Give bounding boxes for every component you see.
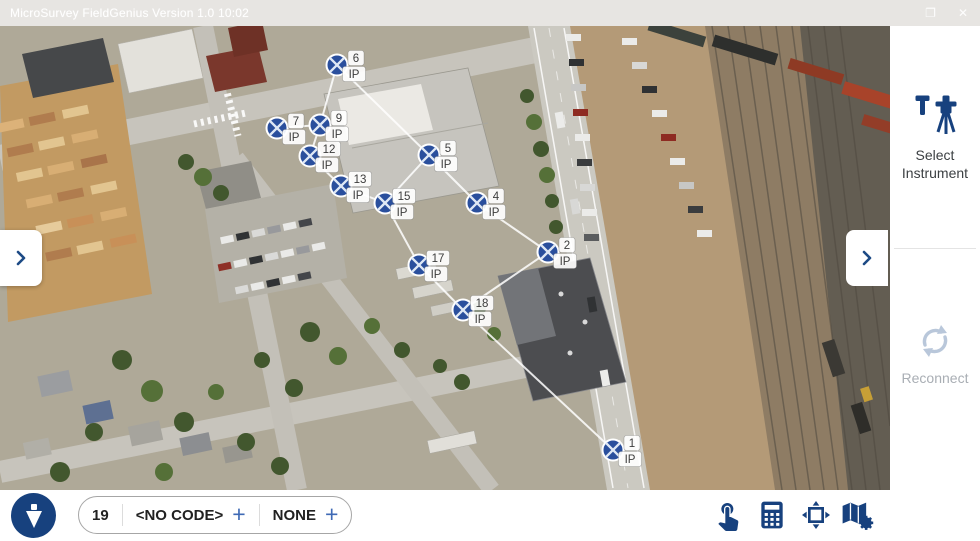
survey-point-13[interactable]: 13IP (331, 172, 372, 203)
point-label-text: IP (475, 314, 486, 326)
point-label-text: 7 (293, 116, 299, 128)
point-label-text: IP (397, 207, 408, 219)
point-label-text: IP (431, 269, 442, 281)
refresh-icon (915, 321, 955, 361)
point-label-text: IP (349, 69, 360, 81)
select-instrument-label: Select Instrument (890, 147, 980, 182)
survey-point-12[interactable]: 12IP (300, 142, 341, 173)
close-button[interactable]: ✕ (958, 6, 968, 20)
app-window: MicroSurvey FieldGenius Version 1.0 10:0… (0, 0, 980, 541)
survey-point-5[interactable]: 5IP (419, 141, 458, 172)
point-label-text: IP (322, 160, 333, 172)
point-label-text: 2 (564, 240, 570, 252)
maximize-button[interactable]: ❐ (925, 6, 936, 20)
survey-point-6[interactable]: 6IP (327, 51, 366, 82)
point-label-text: 13 (354, 174, 367, 186)
survey-point-17[interactable]: 17IP (409, 251, 450, 282)
survey-point-2[interactable]: 2IP (538, 238, 577, 269)
code-selector[interactable]: <NO CODE> + (123, 497, 259, 533)
next-point-number[interactable]: 19 (79, 497, 122, 533)
chevron-right-icon (13, 249, 29, 267)
description-selector[interactable]: NONE + (260, 497, 352, 533)
survey-points-overlay: 1IP2IP4IP5IP6IP7IP9IP12IP13IP15IP17IP18I… (0, 26, 890, 490)
window-title: MicroSurvey FieldGenius Version 1.0 10:0… (0, 6, 249, 20)
point-label-text: 1 (629, 438, 635, 450)
right-panel-expand-tab[interactable] (846, 230, 888, 286)
point-label-text: IP (353, 190, 364, 202)
reconnect-label: Reconnect (890, 370, 980, 386)
zoom-extents-icon (800, 499, 832, 531)
left-panel-expand-tab[interactable] (0, 230, 42, 286)
chevron-right-icon (859, 249, 875, 267)
plumb-bob-icon (23, 503, 45, 529)
point-label-text: IP (289, 132, 300, 144)
touch-mode-button[interactable] (712, 499, 744, 531)
survey-point-7[interactable]: 7IP (267, 114, 306, 145)
survey-point-15[interactable]: 15IP (375, 189, 416, 220)
survey-line (463, 310, 613, 450)
zoom-extents-button[interactable] (800, 499, 832, 531)
calculator-button[interactable] (756, 499, 788, 531)
map-view[interactable]: 1IP2IP4IP5IP6IP7IP9IP12IP13IP15IP17IP18I… (0, 26, 890, 490)
point-label-text: 4 (493, 191, 500, 203)
point-label-text: 6 (353, 53, 359, 65)
point-label-text: 18 (476, 298, 489, 310)
point-label-text: IP (489, 207, 500, 219)
survey-point-18[interactable]: 18IP (453, 296, 494, 327)
panel-divider (894, 248, 976, 249)
reconnect-button: Reconnect (890, 321, 980, 386)
calculator-icon (756, 499, 788, 531)
title-bar: MicroSurvey FieldGenius Version 1.0 10:0… (0, 0, 980, 26)
point-label-text: 15 (398, 191, 411, 203)
survey-point-4[interactable]: 4IP (467, 189, 506, 220)
point-label-text: 17 (432, 253, 445, 265)
add-code-button[interactable]: + (232, 501, 245, 528)
total-station-icon (912, 94, 958, 136)
point-label-text: 12 (323, 144, 336, 156)
point-label-text: 5 (445, 143, 451, 155)
point-label-text: IP (332, 129, 343, 141)
survey-point-1[interactable]: 1IP (603, 436, 642, 467)
point-label-text: IP (560, 256, 571, 268)
add-description-button[interactable]: + (325, 501, 338, 528)
point-label-text: IP (625, 454, 636, 466)
map-settings-icon (840, 499, 874, 531)
instrument-panel: Select Instrument Reconnect (890, 26, 980, 541)
map-settings-button[interactable] (840, 499, 872, 531)
select-instrument-button[interactable]: Select Instrument (890, 94, 980, 182)
point-label-text: 9 (336, 113, 342, 125)
store-point-button[interactable] (11, 493, 56, 538)
touch-icon (712, 499, 744, 531)
point-label-text: IP (441, 159, 452, 171)
point-code-pill: 19 <NO CODE> + NONE + (78, 496, 352, 534)
bottom-toolbar: 19 <NO CODE> + NONE + (0, 490, 890, 541)
